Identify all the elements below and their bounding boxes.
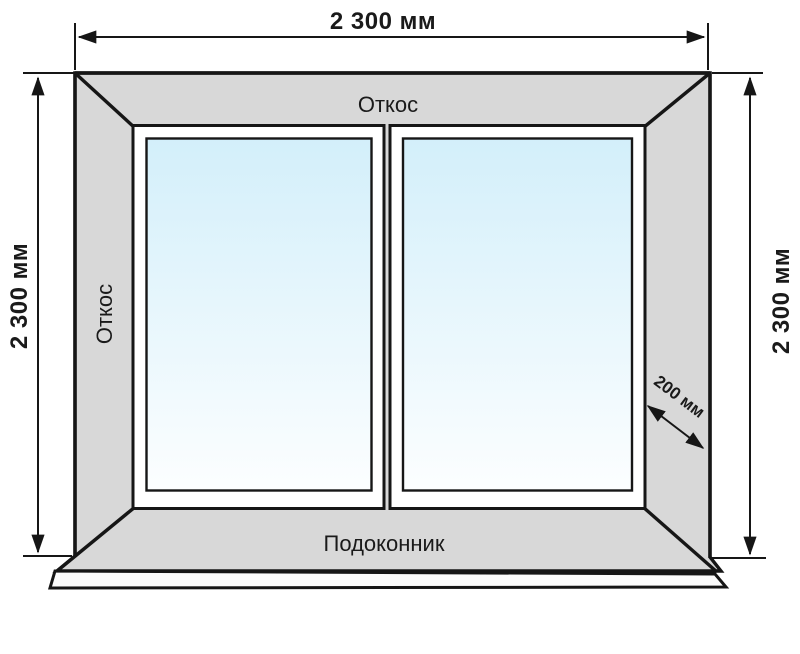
sill-label: Подоконник [324,531,445,556]
dim-width-top-label: 2 300 мм [330,8,436,35]
dim-height-right-label: 2 300 мм [768,248,795,354]
right-glass-pane [403,139,632,491]
left-glass-pane [147,139,372,491]
window-dimensions-diagram: 2 300 мм 2 300 мм 2 300 мм Откос Откос П… [0,0,800,654]
slope-top-label: Откос [358,92,418,117]
dim-height-left-label: 2 300 мм [6,243,33,349]
slope-left-label: Откос [92,284,117,344]
diagram-canvas: 2 300 мм 2 300 мм 2 300 мм Откос Откос П… [0,0,800,654]
windowsill-front-board [50,571,726,588]
